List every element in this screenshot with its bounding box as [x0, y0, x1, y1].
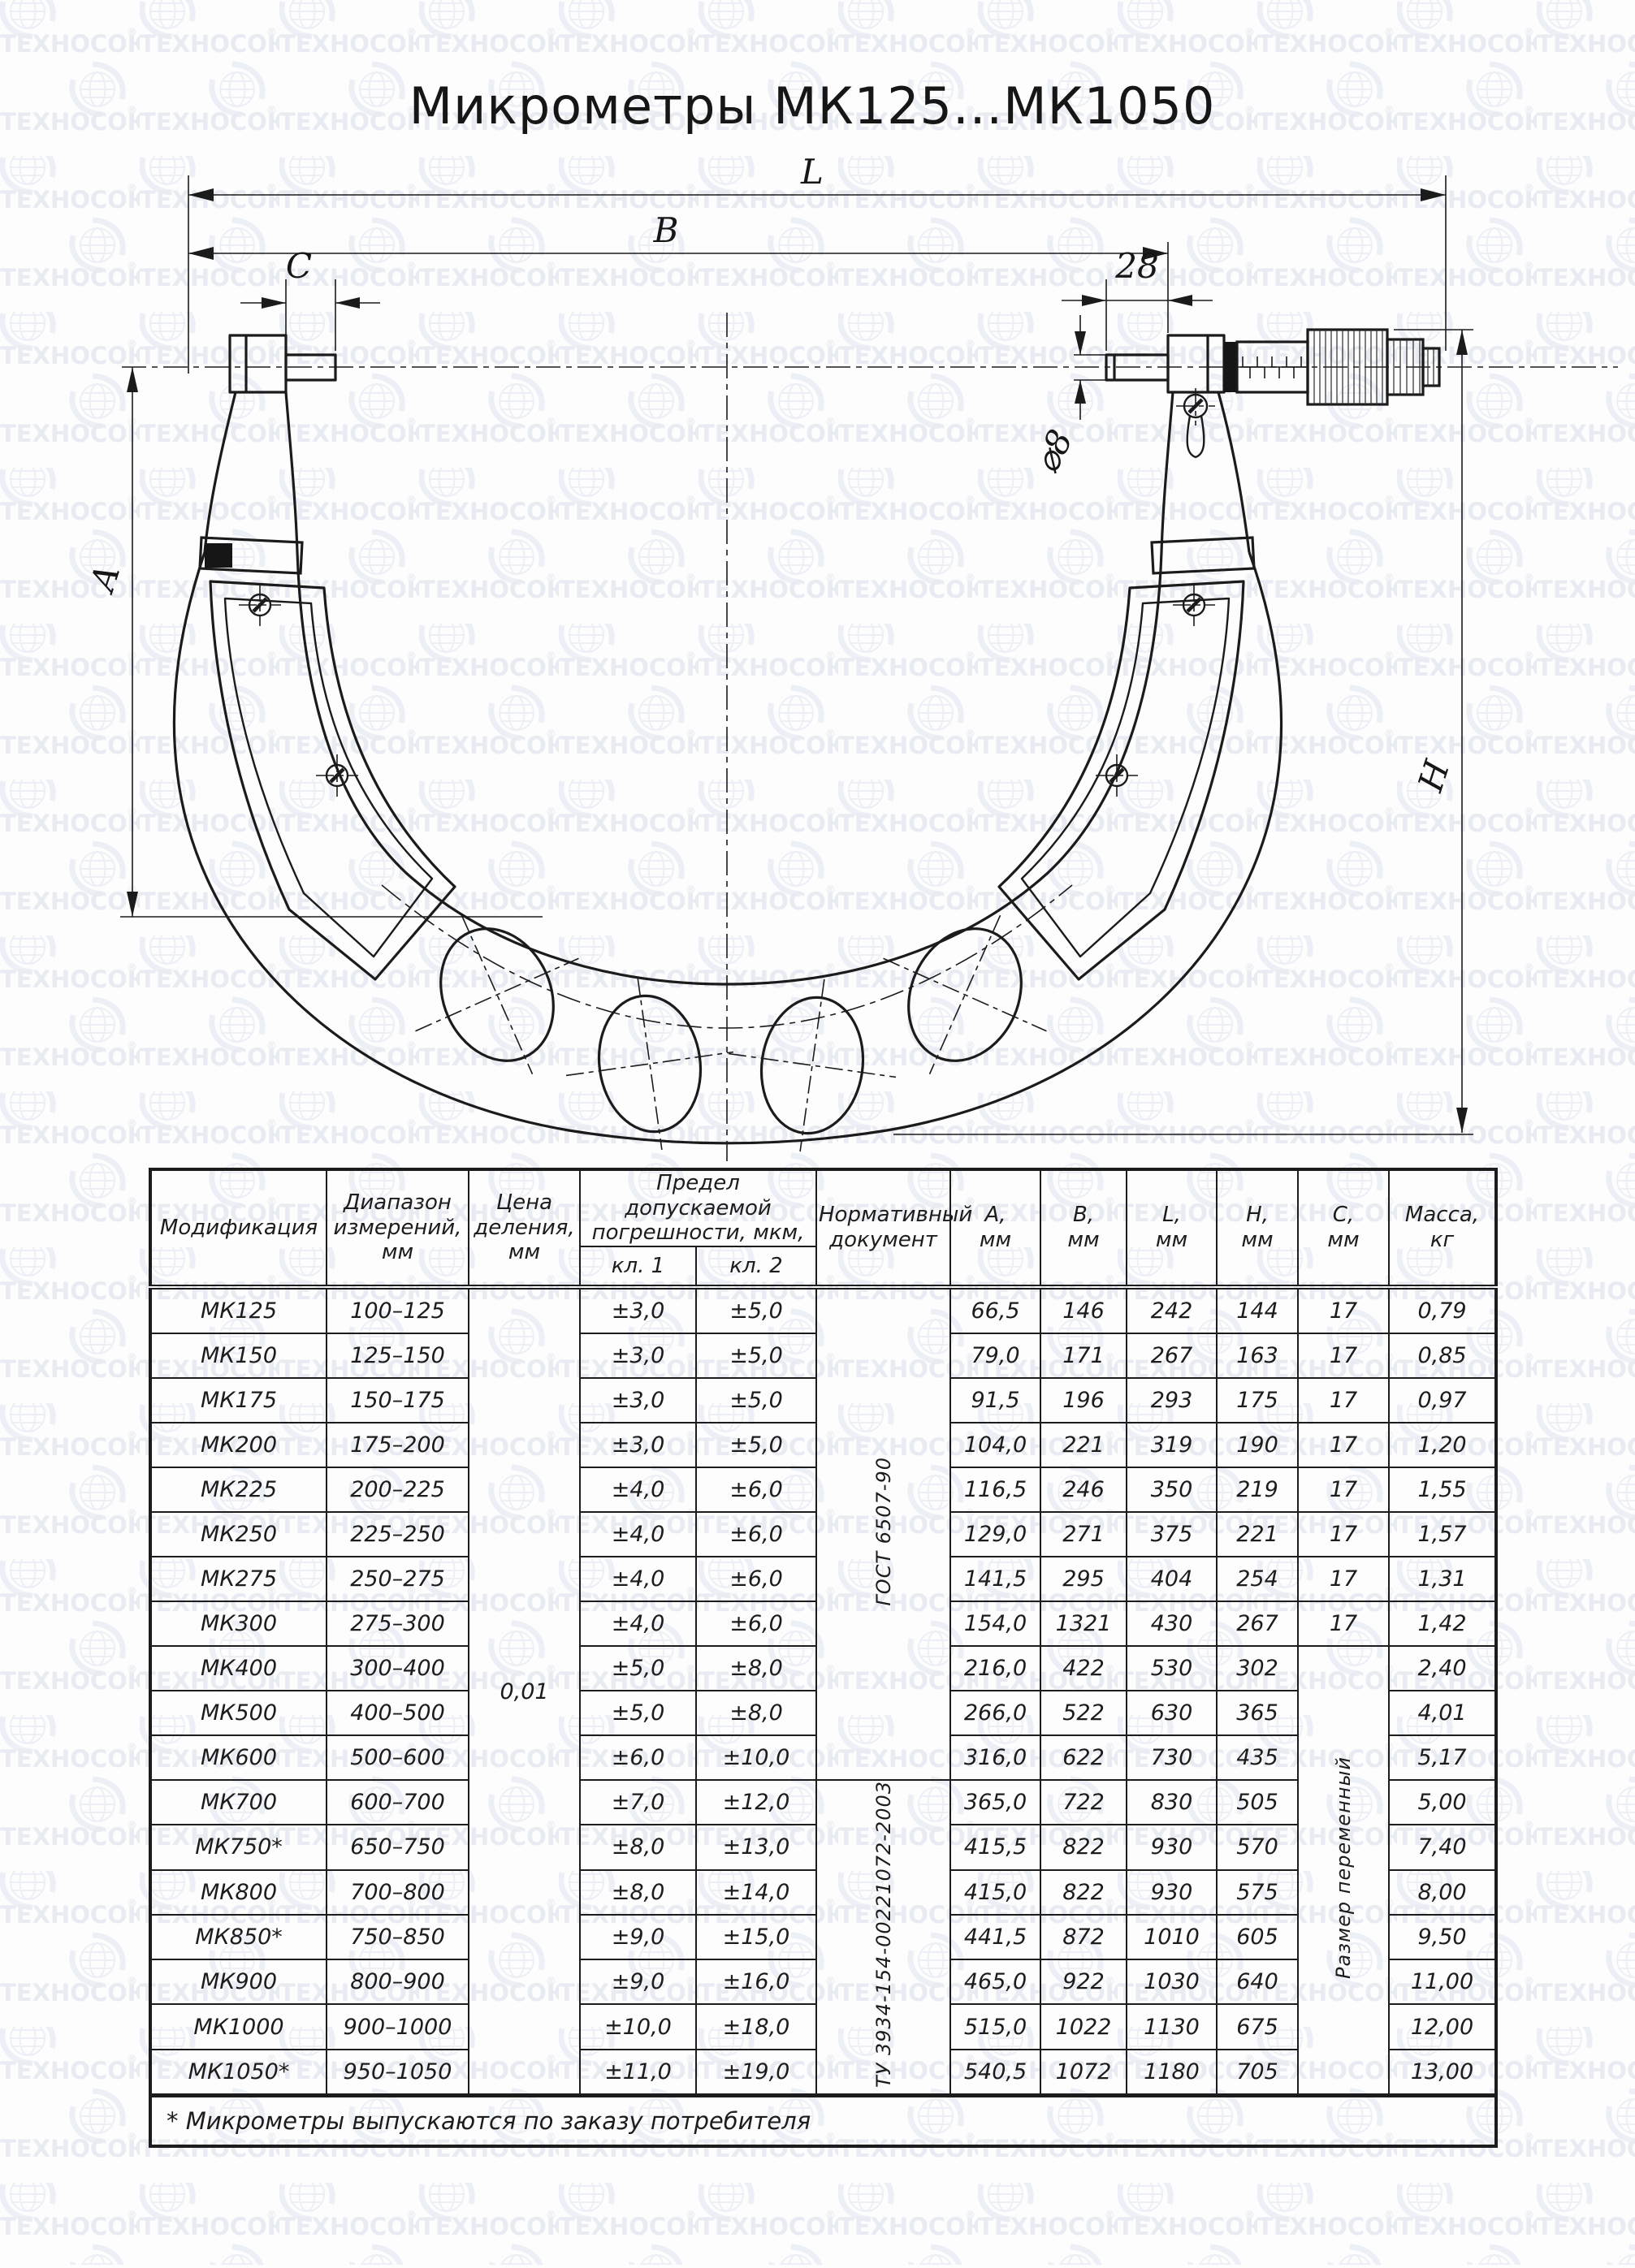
- range-cell: 400–500: [327, 1691, 469, 1735]
- l-cell: 630: [1127, 1691, 1217, 1735]
- mass-cell: 2,40: [1389, 1646, 1496, 1691]
- model-cell: МК900: [150, 1959, 327, 2004]
- b-cell: 1022: [1040, 2004, 1127, 2049]
- b-cell: 196: [1040, 1378, 1127, 1423]
- model-cell: МК1000: [150, 2004, 327, 2049]
- dim-label-L: L: [800, 152, 824, 192]
- mass-cell: 0,97: [1389, 1378, 1496, 1423]
- header-a: А, мм: [950, 1169, 1040, 1287]
- b-cell: 295: [1040, 1557, 1127, 1601]
- a-cell: 104,0: [950, 1423, 1040, 1467]
- dim-label-C: C: [286, 246, 312, 286]
- class2-cell: ±6,0: [696, 1512, 816, 1557]
- a-cell: 129,0: [950, 1512, 1040, 1557]
- class1-cell: ±3,0: [580, 1333, 696, 1378]
- l-cell: 530: [1127, 1646, 1217, 1691]
- a-cell: 540,5: [950, 2050, 1040, 2096]
- model-cell: МК125: [150, 1287, 327, 1333]
- b-cell: 146: [1040, 1287, 1127, 1333]
- centerlines: [122, 313, 1618, 1161]
- class2-cell: ±5,0: [696, 1423, 816, 1467]
- h-cell: 190: [1217, 1423, 1298, 1467]
- a-cell: 116,5: [950, 1467, 1040, 1512]
- l-cell: 267: [1127, 1333, 1217, 1378]
- mass-cell: 8,00: [1389, 1870, 1496, 1915]
- l-cell: 293: [1127, 1378, 1217, 1423]
- mass-cell: 12,00: [1389, 2004, 1496, 2049]
- c-cell: 17: [1298, 1378, 1389, 1423]
- b-cell: 271: [1040, 1512, 1127, 1557]
- c-cell: 17: [1298, 1557, 1389, 1601]
- header-h: Н, мм: [1217, 1169, 1298, 1287]
- model-cell: МК175: [150, 1378, 327, 1423]
- dimension-arrows: [127, 188, 1468, 1133]
- model-cell: МК150: [150, 1333, 327, 1378]
- tu-document-cell: ТУ 3934-154-00221072-2003: [816, 1780, 950, 2096]
- a-cell: 515,0: [950, 2004, 1040, 2049]
- header-b: В, мм: [1040, 1169, 1127, 1287]
- mass-cell: 0,85: [1389, 1333, 1496, 1378]
- l-cell: 375: [1127, 1512, 1217, 1557]
- class1-cell: ±9,0: [580, 1959, 696, 2004]
- class1-cell: ±9,0: [580, 1915, 696, 1959]
- h-cell: 219: [1217, 1467, 1298, 1512]
- mass-cell: 5,00: [1389, 1780, 1496, 1825]
- table-footnote-section: * Микрометры выпускаются по заказу потре…: [150, 2096, 1496, 2147]
- b-cell: 221: [1040, 1423, 1127, 1467]
- model-cell: МК250: [150, 1512, 327, 1557]
- model-cell: МК750*: [150, 1825, 327, 1869]
- a-cell: 216,0: [950, 1646, 1040, 1691]
- class1-cell: ±8,0: [580, 1825, 696, 1869]
- frame-hole: [753, 991, 872, 1140]
- a-cell: 79,0: [950, 1333, 1040, 1378]
- h-cell: 163: [1217, 1333, 1298, 1378]
- model-cell: МК500: [150, 1691, 327, 1735]
- left-post: [230, 335, 286, 392]
- b-cell: 622: [1040, 1735, 1127, 1780]
- mass-cell: 1,57: [1389, 1512, 1496, 1557]
- header-mass: Масса, кг: [1389, 1169, 1496, 1287]
- class2-cell: ±8,0: [696, 1691, 816, 1735]
- range-cell: 125–150: [327, 1333, 469, 1378]
- l-cell: 404: [1127, 1557, 1217, 1601]
- class1-cell: ±3,0: [580, 1378, 696, 1423]
- range-cell: 750–850: [327, 1915, 469, 1959]
- c-cell: 17: [1298, 1601, 1389, 1646]
- dimension-lines: [132, 195, 1462, 1133]
- c-variable-cell: Размер переменный: [1298, 1646, 1389, 2096]
- range-cell: 950–1050: [327, 2050, 469, 2096]
- header-error-limit: Предел допускаемой погрешности, мкм,: [580, 1169, 816, 1246]
- class1-cell: ±6,0: [580, 1735, 696, 1780]
- l-cell: 1180: [1127, 2050, 1217, 2096]
- h-cell: 640: [1217, 1959, 1298, 2004]
- range-cell: 225–250: [327, 1512, 469, 1557]
- dim-label-A: A: [81, 560, 128, 599]
- spec-table: Модификация Диапазон измерений, мм Цена …: [149, 1168, 1498, 2148]
- class1-cell: ±3,0: [580, 1423, 696, 1467]
- class2-cell: ±5,0: [696, 1378, 816, 1423]
- h-cell: 570: [1217, 1825, 1298, 1869]
- dim-label-H: H: [1410, 754, 1458, 797]
- c-cell: 17: [1298, 1512, 1389, 1557]
- b-cell: 1072: [1040, 2050, 1127, 2096]
- c-cell: 17: [1298, 1467, 1389, 1512]
- class2-cell: ±16,0: [696, 1959, 816, 2004]
- a-cell: 91,5: [950, 1378, 1040, 1423]
- b-cell: 722: [1040, 1780, 1127, 1825]
- l-cell: 930: [1127, 1825, 1217, 1869]
- class2-cell: ±15,0: [696, 1915, 816, 1959]
- range-cell: 275–300: [327, 1601, 469, 1646]
- a-cell: 266,0: [950, 1691, 1040, 1735]
- model-cell: МК700: [150, 1780, 327, 1825]
- class1-cell: ±4,0: [580, 1557, 696, 1601]
- micrometer-drawing: Микрометры МК125...МК1050: [0, 0, 1635, 1168]
- c-cell: 17: [1298, 1287, 1389, 1333]
- header-step: Цена деления, мм: [469, 1169, 580, 1287]
- model-cell: МК800: [150, 1870, 327, 1915]
- a-cell: 154,0: [950, 1601, 1040, 1646]
- h-cell: 144: [1217, 1287, 1298, 1333]
- right-post: [1168, 335, 1224, 392]
- b-cell: 422: [1040, 1646, 1127, 1691]
- b-cell: 171: [1040, 1333, 1127, 1378]
- mass-cell: 1,31: [1389, 1557, 1496, 1601]
- table-row: МК700600–700±7,0±12,0ТУ 3934-154-0022107…: [150, 1780, 1496, 1825]
- class2-cell: ±19,0: [696, 2050, 816, 2096]
- class1-cell: ±4,0: [580, 1512, 696, 1557]
- b-cell: 822: [1040, 1825, 1127, 1869]
- b-cell: 246: [1040, 1467, 1127, 1512]
- class2-cell: ±18,0: [696, 2004, 816, 2049]
- class2-cell: ±6,0: [696, 1601, 816, 1646]
- class1-cell: ±11,0: [580, 2050, 696, 2096]
- model-cell: МК275: [150, 1557, 327, 1601]
- model-cell: МК850*: [150, 1915, 327, 1959]
- gost-document-cell: ГОСТ 6507-90: [816, 1287, 950, 1780]
- extension-lines: [120, 175, 1473, 1134]
- a-cell: 415,0: [950, 1870, 1040, 1915]
- class2-cell: ±14,0: [696, 1870, 816, 1915]
- range-cell: 800–900: [327, 1959, 469, 2004]
- header-class2: кл. 2: [696, 1246, 816, 1287]
- mass-cell: 9,50: [1389, 1915, 1496, 1959]
- mass-cell: 4,01: [1389, 1691, 1496, 1735]
- h-cell: 221: [1217, 1512, 1298, 1557]
- model-cell: МК600: [150, 1735, 327, 1780]
- class2-cell: ±8,0: [696, 1646, 816, 1691]
- model-cell: МК400: [150, 1646, 327, 1691]
- class1-cell: ±10,0: [580, 2004, 696, 2049]
- mass-cell: 13,00: [1389, 2050, 1496, 2096]
- l-cell: 319: [1127, 1423, 1217, 1467]
- class2-cell: ±12,0: [696, 1780, 816, 1825]
- l-cell: 350: [1127, 1467, 1217, 1512]
- h-cell: 302: [1217, 1646, 1298, 1691]
- header-range: Диапазон измерений, мм: [327, 1169, 469, 1287]
- class2-cell: ±5,0: [696, 1287, 816, 1333]
- class1-cell: ±4,0: [580, 1601, 696, 1646]
- class2-cell: ±6,0: [696, 1467, 816, 1512]
- a-cell: 365,0: [950, 1780, 1040, 1825]
- mass-cell: 7,40: [1389, 1825, 1496, 1869]
- h-cell: 675: [1217, 2004, 1298, 2049]
- table-header: Модификация Диапазон измерений, мм Цена …: [150, 1169, 1496, 1287]
- page: { "title": "Микрометры МК125...МК1050", …: [0, 0, 1635, 2265]
- h-cell: 175: [1217, 1378, 1298, 1423]
- header-class1: кл. 1: [580, 1246, 696, 1287]
- h-cell: 254: [1217, 1557, 1298, 1601]
- range-cell: 650–750: [327, 1825, 469, 1869]
- range-cell: 300–400: [327, 1646, 469, 1691]
- l-cell: 930: [1127, 1870, 1217, 1915]
- footnote-text: * Микрометры выпускаются по заказу потре…: [150, 2096, 1496, 2147]
- model-cell: МК300: [150, 1601, 327, 1646]
- brand-mark: [205, 543, 232, 568]
- page-title: Микрометры МК125...МК1050: [409, 76, 1216, 136]
- a-cell: 66,5: [950, 1287, 1040, 1333]
- h-cell: 435: [1217, 1735, 1298, 1780]
- h-cell: 575: [1217, 1870, 1298, 1915]
- a-cell: 441,5: [950, 1915, 1040, 1959]
- h-cell: 267: [1217, 1601, 1298, 1646]
- dim-label-B: B: [653, 210, 679, 250]
- footnote-row: * Микрометры выпускаются по заказу потре…: [150, 2096, 1496, 2147]
- dim-label-28: 28: [1114, 246, 1158, 286]
- range-cell: 200–225: [327, 1467, 469, 1512]
- class2-cell: ±10,0: [696, 1735, 816, 1780]
- model-cell: МК1050*: [150, 2050, 327, 2096]
- l-cell: 242: [1127, 1287, 1217, 1333]
- range-cell: 150–175: [327, 1378, 469, 1423]
- a-cell: 465,0: [950, 1959, 1040, 2004]
- h-cell: 505: [1217, 1780, 1298, 1825]
- b-cell: 1321: [1040, 1601, 1127, 1646]
- mass-cell: 1,42: [1389, 1601, 1496, 1646]
- class1-cell: ±5,0: [580, 1691, 696, 1735]
- class1-cell: ±8,0: [580, 1870, 696, 1915]
- dimension-labels: L B C 28 ⌀8 A H: [81, 152, 1458, 797]
- l-cell: 430: [1127, 1601, 1217, 1646]
- spec-table-body: МК125100–1250,01±3,0±5,0ГОСТ 6507-9066,5…: [150, 1287, 1496, 2096]
- mass-cell: 0,79: [1389, 1287, 1496, 1333]
- l-cell: 1130: [1127, 2004, 1217, 2049]
- table-row: МК125100–1250,01±3,0±5,0ГОСТ 6507-9066,5…: [150, 1287, 1496, 1333]
- l-cell: 830: [1127, 1780, 1217, 1825]
- class1-cell: ±5,0: [580, 1646, 696, 1691]
- model-cell: МК225: [150, 1467, 327, 1512]
- l-cell: 730: [1127, 1735, 1217, 1780]
- frame-holes: [380, 879, 1082, 1164]
- mass-cell: 11,00: [1389, 1959, 1496, 2004]
- dim-label-dia8: ⌀8: [1027, 424, 1081, 479]
- c-cell: 17: [1298, 1423, 1389, 1467]
- mass-cell: 5,17: [1389, 1735, 1496, 1780]
- sleeve-index-band: [1224, 342, 1237, 392]
- range-cell: 600–700: [327, 1780, 469, 1825]
- class1-cell: ±4,0: [580, 1467, 696, 1512]
- class2-cell: ±5,0: [696, 1333, 816, 1378]
- mass-cell: 1,55: [1389, 1467, 1496, 1512]
- class2-cell: ±13,0: [696, 1825, 816, 1869]
- h-cell: 605: [1217, 1915, 1298, 1959]
- range-cell: 500–600: [327, 1735, 469, 1780]
- class2-cell: ±6,0: [696, 1557, 816, 1601]
- b-cell: 922: [1040, 1959, 1127, 2004]
- h-cell: 705: [1217, 2050, 1298, 2096]
- c-cell: 17: [1298, 1333, 1389, 1378]
- range-cell: 900–1000: [327, 2004, 469, 2049]
- b-cell: 872: [1040, 1915, 1127, 1959]
- range-cell: 250–275: [327, 1557, 469, 1601]
- b-cell: 822: [1040, 1870, 1127, 1915]
- l-cell: 1030: [1127, 1959, 1217, 2004]
- header-document: Нормативный документ: [816, 1169, 950, 1287]
- b-cell: 522: [1040, 1691, 1127, 1735]
- header-c: С, мм: [1298, 1169, 1389, 1287]
- a-cell: 415,5: [950, 1825, 1040, 1869]
- a-cell: 316,0: [950, 1735, 1040, 1780]
- range-cell: 175–200: [327, 1423, 469, 1467]
- a-cell: 141,5: [950, 1557, 1040, 1601]
- model-cell: МК200: [150, 1423, 327, 1467]
- step-value-cell: 0,01: [469, 1287, 580, 2096]
- range-cell: 100–125: [327, 1287, 469, 1333]
- h-cell: 365: [1217, 1691, 1298, 1735]
- l-cell: 1010: [1127, 1915, 1217, 1959]
- range-cell: 700–800: [327, 1870, 469, 1915]
- class1-cell: ±7,0: [580, 1780, 696, 1825]
- clamp-lever: [1176, 388, 1215, 457]
- class1-cell: ±3,0: [580, 1287, 696, 1333]
- mass-cell: 1,20: [1389, 1423, 1496, 1467]
- header-l: L, мм: [1127, 1169, 1217, 1287]
- header-modification: Модификация: [150, 1169, 327, 1287]
- spec-table-container: Модификация Диапазон измерений, мм Цена …: [149, 1168, 1494, 2148]
